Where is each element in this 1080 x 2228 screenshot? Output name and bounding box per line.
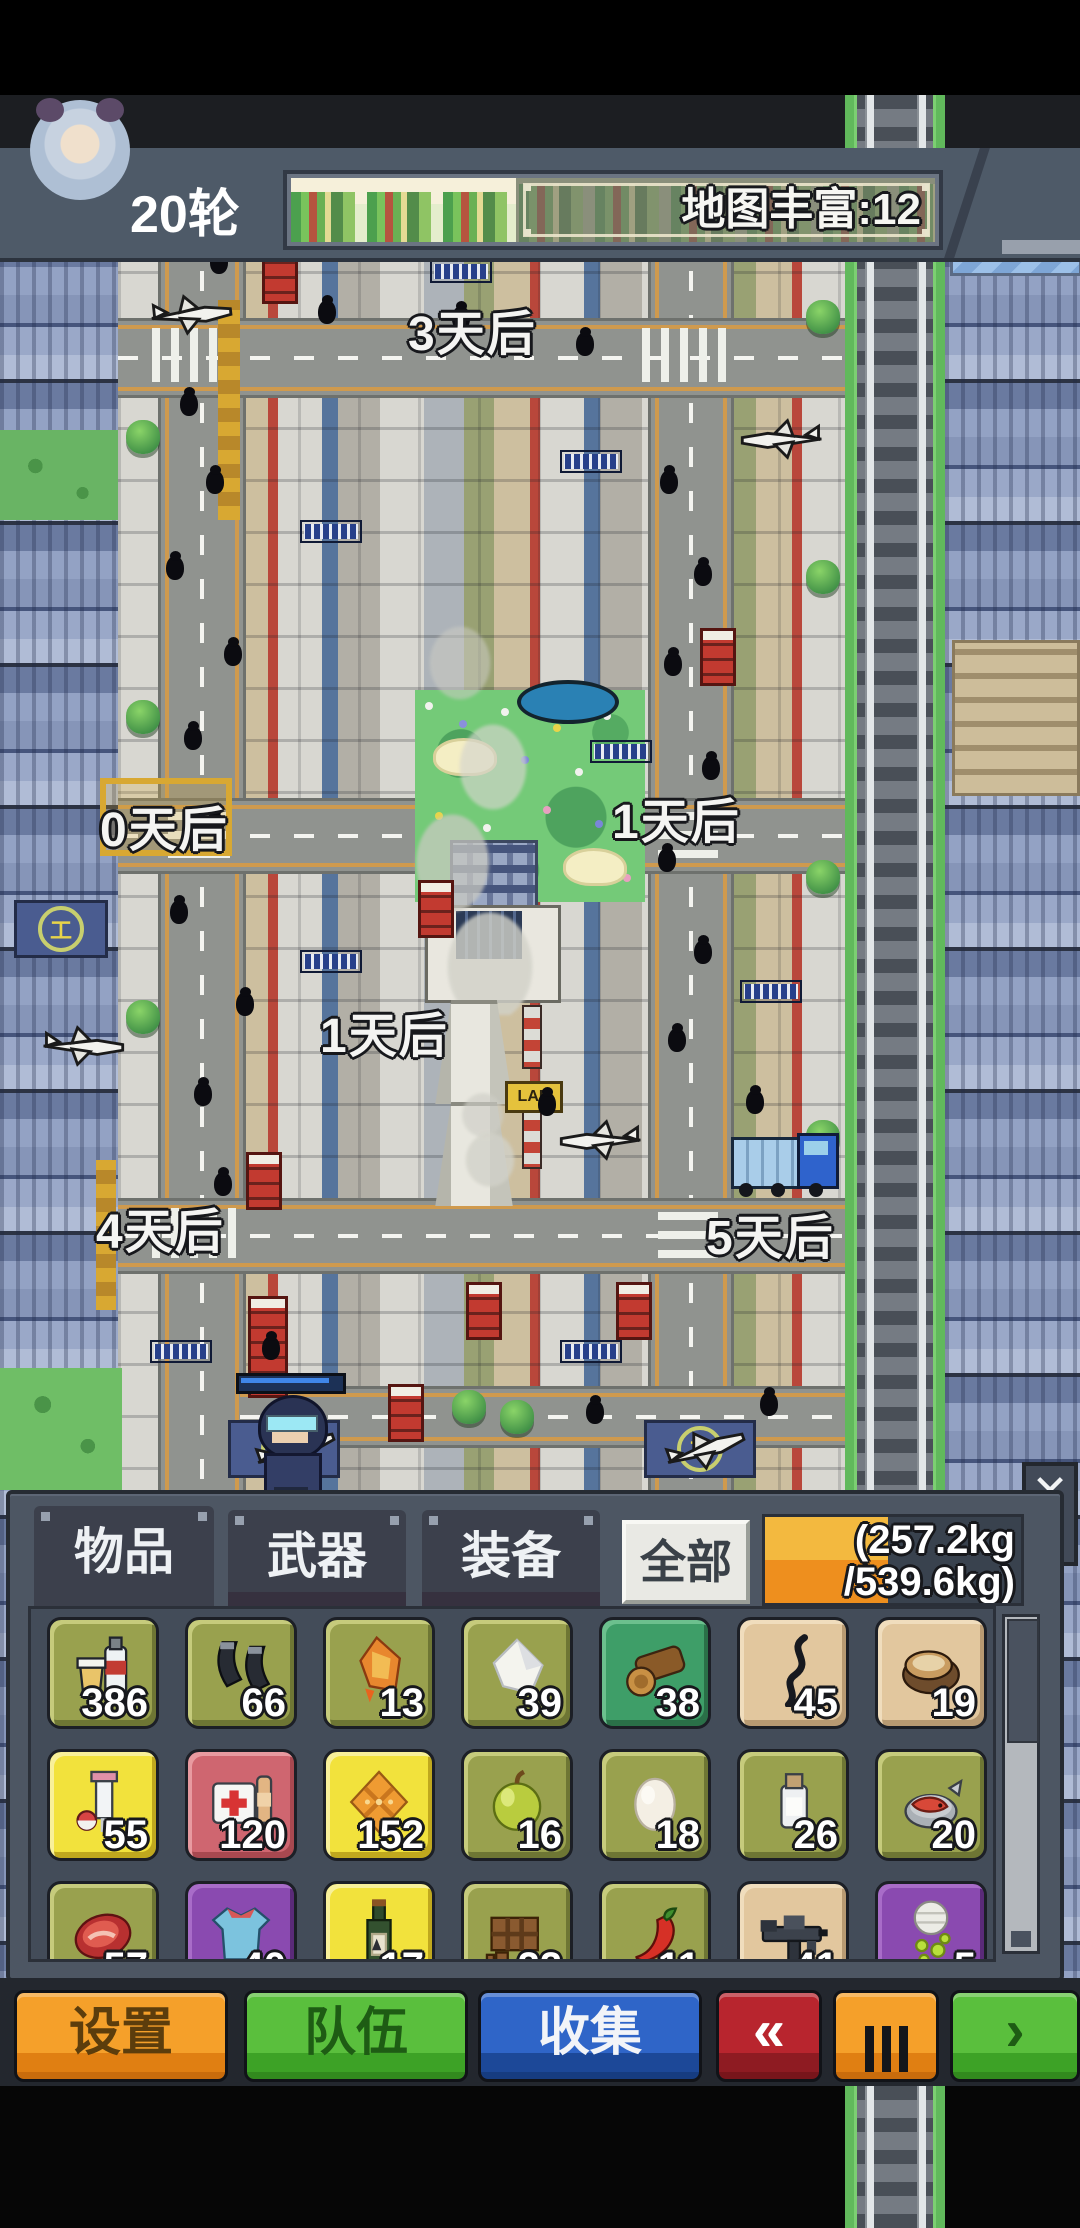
item-count: 11 xyxy=(658,1945,700,1962)
item-count: 13 xyxy=(380,1681,425,1726)
inventory-slot[interactable]: 17 xyxy=(323,1881,435,1962)
collect-button[interactable]: 收集 xyxy=(478,1990,702,2082)
inventory-slot[interactable]: 40 xyxy=(185,1881,297,1962)
inventory-slot[interactable]: 26 xyxy=(737,1749,849,1861)
header-dark-band xyxy=(945,95,1080,148)
settings-button[interactable]: 设置 xyxy=(14,1990,228,2082)
weight-indicator: (257.2kg /539.6kg) xyxy=(762,1514,1024,1606)
map-richness-fill xyxy=(291,178,516,242)
item-count: 17 xyxy=(380,1945,425,1962)
map-label-days: 4天后 xyxy=(96,1192,225,1262)
map-label-days: 0天后 xyxy=(100,790,229,860)
game-screen: LAB xyxy=(0,0,1080,2228)
inventory-slot[interactable]: 57 xyxy=(47,1881,159,1962)
inventory-slot[interactable]: 5 xyxy=(875,1881,987,1962)
item-count: 5 xyxy=(954,1945,976,1962)
header-trim xyxy=(1002,240,1080,254)
map-richness-bar: 地图丰富:12 xyxy=(283,170,943,250)
inventory-slot[interactable]: 55 xyxy=(47,1749,159,1861)
map-label-days: 5天后 xyxy=(706,1198,835,1268)
tan-building xyxy=(952,640,1080,796)
item-count: 26 xyxy=(794,1813,839,1858)
scrollbar-notch xyxy=(1011,1931,1031,1947)
map-label-days: 1天后 xyxy=(612,782,741,852)
inventory-slot[interactable]: 66 xyxy=(185,1617,297,1729)
item-count: 41 xyxy=(794,1945,839,1962)
status-bar xyxy=(0,0,1080,95)
item-count: 39 xyxy=(518,1681,563,1726)
inventory-slot[interactable]: 13 xyxy=(323,1617,435,1729)
filter-all-button[interactable]: 全部 xyxy=(622,1520,750,1604)
item-count: 40 xyxy=(242,1945,287,1962)
inventory-slot[interactable]: 18 xyxy=(599,1749,711,1861)
cat-creature xyxy=(563,848,627,886)
inventory-slot[interactable]: 19 xyxy=(875,1617,987,1729)
item-count: 18 xyxy=(656,1813,701,1858)
item-count: 57 xyxy=(104,1945,149,1962)
inventory-slot[interactable]: 152 xyxy=(323,1749,435,1861)
item-count: 19 xyxy=(932,1681,977,1726)
forward-button[interactable]: › xyxy=(950,1990,1080,2082)
map-richness-label: 地图丰富:12 xyxy=(681,178,921,242)
inventory-scrollbar[interactable] xyxy=(1002,1614,1040,1954)
map-label-days: 1天后 xyxy=(320,996,449,1066)
item-count: 22 xyxy=(518,1945,563,1962)
item-count: 55 xyxy=(104,1813,149,1858)
round-counter: 20轮 xyxy=(130,172,240,247)
tab-equipment[interactable]: 装备 xyxy=(422,1510,600,1606)
forward-icon: › xyxy=(1005,1998,1024,2063)
inventory-slot[interactable]: 45 xyxy=(737,1617,849,1729)
rewind-button[interactable]: « xyxy=(716,1990,822,2082)
inventory-slot[interactable]: 39 xyxy=(461,1617,573,1729)
header-seam xyxy=(944,148,990,258)
player-avatar[interactable] xyxy=(30,100,130,200)
item-count: 386 xyxy=(81,1681,148,1726)
truck-sprite xyxy=(731,1131,837,1193)
tab-weapons[interactable]: 武器 xyxy=(228,1510,406,1606)
triple-bars-icon xyxy=(861,2015,912,2095)
inventory-panel: 物品 武器 装备 全部 (257.2kg /539.6kg) 386 66 13 xyxy=(6,1490,1064,1982)
visor-icon xyxy=(266,1415,318,1432)
inventory-grid: 386 66 13 39 38 45 xyxy=(28,1606,996,1962)
inventory-slot[interactable]: 41 xyxy=(737,1881,849,1962)
item-count: 16 xyxy=(518,1813,563,1858)
scrollbar-thumb[interactable] xyxy=(1007,1619,1039,1743)
team-button[interactable]: 队伍 xyxy=(244,1990,468,2082)
crosswalk xyxy=(642,328,734,382)
item-count: 45 xyxy=(794,1681,839,1726)
map-label-days: 3天后 xyxy=(408,294,537,364)
inventory-slot[interactable]: 38 xyxy=(599,1617,711,1729)
inventory-slot[interactable]: 16 xyxy=(461,1749,573,1861)
railway-track xyxy=(845,2086,945,2228)
item-count: 38 xyxy=(656,1681,701,1726)
item-count: 20 xyxy=(932,1813,977,1858)
smoke-plume xyxy=(400,615,550,1015)
inventory-slot[interactable]: 20 xyxy=(875,1749,987,1861)
item-count: 152 xyxy=(357,1813,424,1858)
rewind-icon: « xyxy=(753,1998,785,2063)
bottom-strip xyxy=(0,2086,1080,2228)
inventory-slot[interactable]: 386 xyxy=(47,1617,159,1729)
striped-chimney xyxy=(522,1005,542,1069)
speed-button[interactable] xyxy=(833,1990,939,2082)
player-character[interactable] xyxy=(236,1373,346,1503)
inventory-slot[interactable]: 120 xyxy=(185,1749,297,1861)
player-health-bar xyxy=(236,1373,346,1394)
item-count: 120 xyxy=(219,1813,286,1858)
inventory-slot[interactable]: 11 xyxy=(599,1881,711,1962)
helipad-building: 工 xyxy=(14,900,108,958)
item-count: 66 xyxy=(242,1681,287,1726)
inventory-slot[interactable]: 22 xyxy=(461,1881,573,1962)
tab-items[interactable]: 物品 xyxy=(34,1506,214,1606)
